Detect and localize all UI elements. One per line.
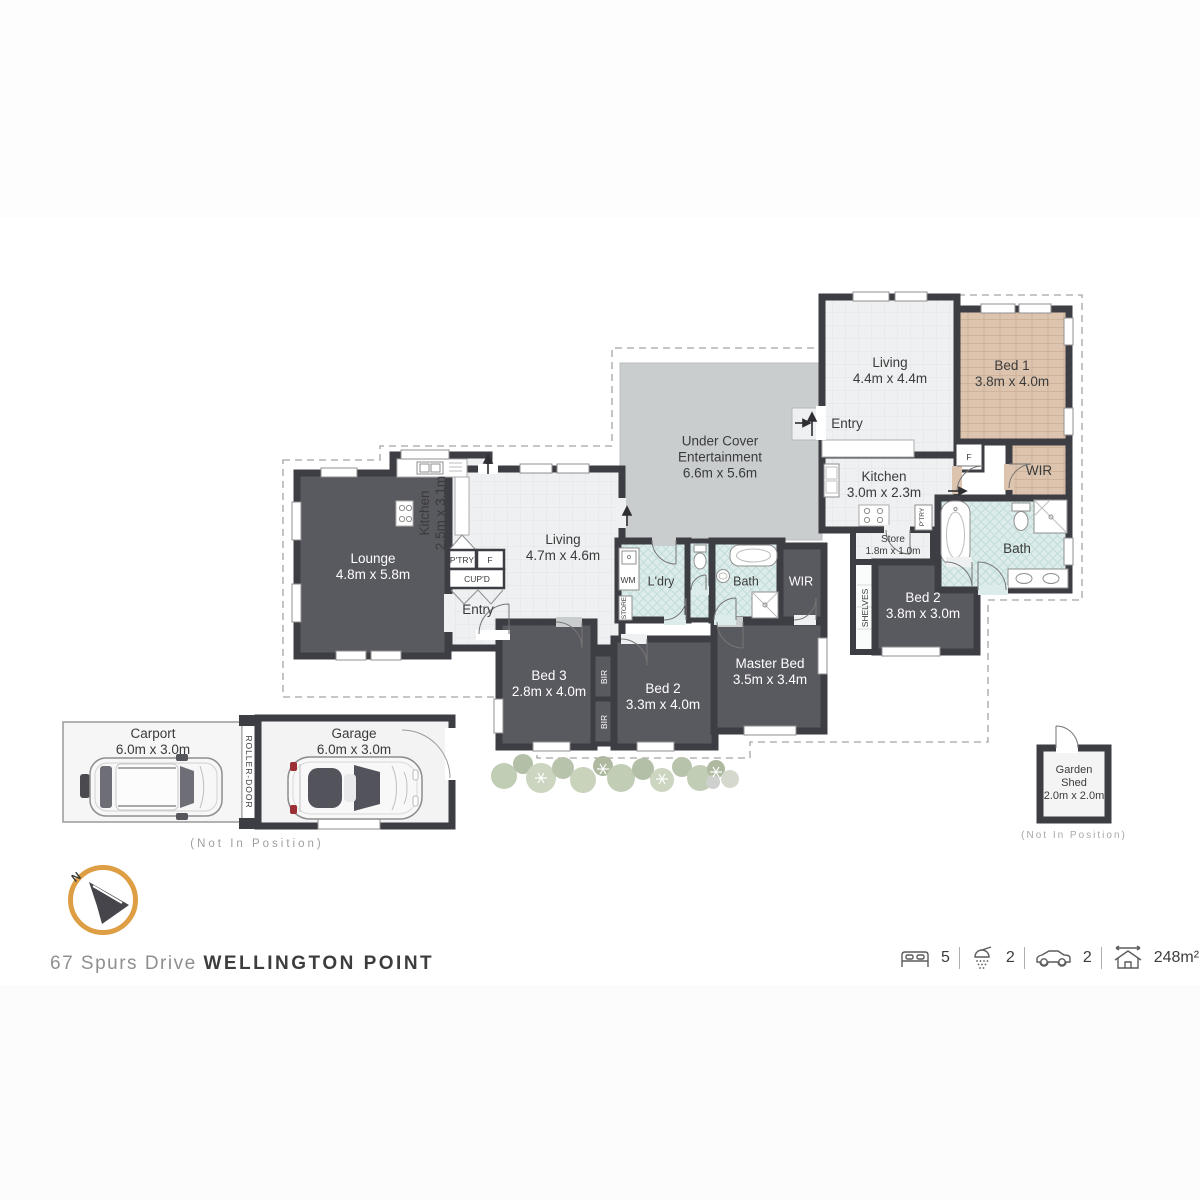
house-2-structure xyxy=(822,297,1069,652)
bed-icon xyxy=(898,946,932,970)
garden-greenery xyxy=(491,754,739,793)
car-icon xyxy=(1034,946,1074,970)
bed-count: 5 xyxy=(941,949,950,967)
floorplan-drawing: N xyxy=(0,0,1200,1200)
stats-divider xyxy=(1101,947,1102,969)
property-stats: 5 2 2 248m² xyxy=(898,940,1199,976)
stats-divider xyxy=(959,947,960,969)
under-cover-area xyxy=(620,363,822,540)
shower-icon xyxy=(969,946,997,970)
floorplan-page: N Lounge4.8m x 5.8m Kitchen2.5m x 3.1m L… xyxy=(0,0,1200,1200)
compass: N xyxy=(70,868,136,933)
bath-count: 2 xyxy=(1006,949,1015,967)
property-address: 67 Spurs Drive WELLINGTON POINT xyxy=(50,953,434,975)
garden-shed-structure xyxy=(1040,726,1108,820)
stats-divider xyxy=(1024,947,1025,969)
car-count: 2 xyxy=(1083,949,1092,967)
address-suburb: WELLINGTON POINT xyxy=(203,953,434,974)
house-area-icon xyxy=(1111,945,1145,971)
sports-car xyxy=(288,757,422,819)
suv-car xyxy=(80,754,222,820)
area-value: 248m² xyxy=(1154,949,1199,967)
address-street: 67 Spurs Drive xyxy=(50,953,197,974)
